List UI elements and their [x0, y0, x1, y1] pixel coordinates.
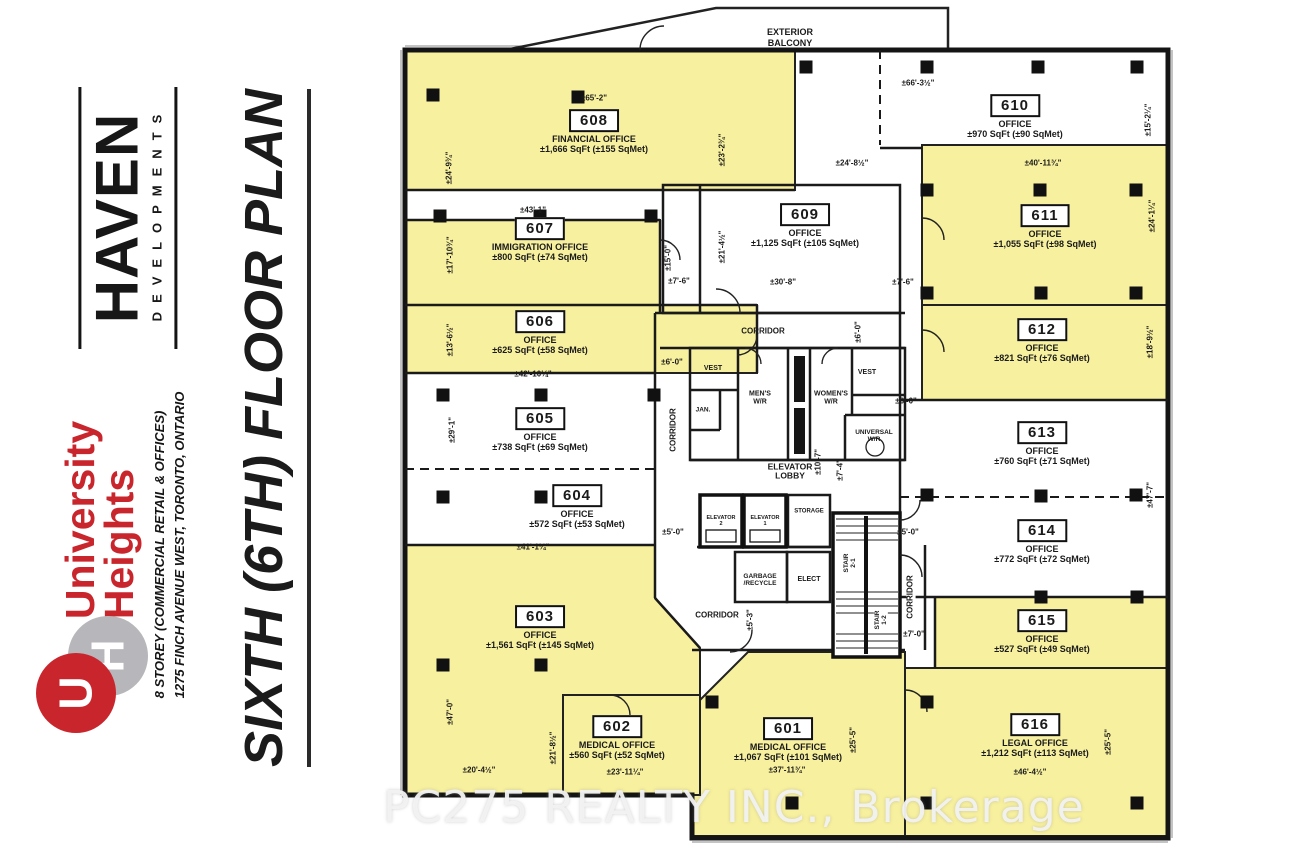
core-label: UNIVERSAL W/R — [855, 429, 893, 443]
room-number: 607 — [515, 217, 565, 240]
core-label: STAIR 2-1 — [843, 553, 857, 572]
room-label-609: 609OFFICE±1,125 SqFt (±105 SqMet) — [751, 203, 859, 249]
core-label: ELEVATOR LOBBY — [768, 463, 813, 482]
room-type: OFFICE — [994, 343, 1089, 353]
room-area: ±1,561 SqFt (±145 SqMet) — [486, 641, 594, 651]
dimension-label: ±21'-8½" — [549, 732, 558, 765]
room-label-608: 608FINANCIAL OFFICE±1,666 SqFt (±155 SqM… — [540, 109, 648, 155]
room-number: 604 — [552, 484, 602, 507]
room-label-603: 603OFFICE±1,561 SqFt (±145 SqMet) — [486, 605, 594, 651]
dimension-label: ±5'-3" — [746, 609, 755, 631]
room-number: 614 — [1017, 519, 1067, 542]
dimension-label: ±43'-1" — [520, 206, 546, 215]
core-label: MEN'S W/R — [749, 390, 771, 405]
dimension-label: ±30'-8" — [770, 278, 796, 287]
dimension-label: ±5'-0" — [897, 528, 919, 537]
dimension-label: ±5'-0" — [662, 528, 684, 537]
room-label-611: 611OFFICE±1,055 SqFt (±98 SqMet) — [994, 204, 1097, 250]
room-type: OFFICE — [967, 119, 1062, 129]
room-area: ±970 SqFt (±90 SqMet) — [967, 130, 1062, 140]
room-type: OFFICE — [492, 432, 587, 442]
dimension-label: ±17'-10¾" — [446, 236, 455, 273]
core-label: CORRIDOR — [695, 612, 739, 621]
room-type: OFFICE — [994, 544, 1089, 554]
room-type: LEGAL OFFICE — [981, 738, 1088, 748]
floor-plan-page: HAVEN DEVELOPMENTS University Heights 8 … — [0, 0, 1300, 867]
room-type: OFFICE — [529, 509, 624, 519]
room-label-604: 604OFFICE±572 SqFt (±53 SqMet) — [529, 484, 624, 530]
room-type: OFFICE — [492, 335, 587, 345]
room-number: 606 — [515, 310, 565, 333]
exterior-balcony-label: EXTERIOR BALCONY — [767, 27, 813, 49]
dimension-label: ±40'-11¾" — [1025, 159, 1062, 168]
room-area: ±738 SqFt (±69 SqMet) — [492, 443, 587, 453]
room-area: ±1,212 SqFt (±113 SqMet) — [981, 749, 1088, 759]
dimension-label: ±7'-6" — [668, 277, 690, 286]
dimension-label: ±25'-5" — [1104, 729, 1113, 755]
core-label: CORRIDOR — [907, 575, 916, 619]
room-label-607: 607IMMIGRATION OFFICE±800 SqFt (±74 SqMe… — [492, 217, 588, 263]
core-label: STAIR 1-2 — [874, 610, 888, 629]
room-area: ±800 SqFt (±74 SqMet) — [492, 253, 588, 263]
room-number: 602 — [592, 715, 642, 738]
room-type: MEDICAL OFFICE — [569, 740, 664, 750]
room-number: 615 — [1017, 609, 1067, 632]
room-label-601: 601MEDICAL OFFICE±1,067 SqFt (±101 SqMet… — [734, 717, 842, 763]
room-area: ±560 SqFt (±52 SqMet) — [569, 751, 664, 761]
dimension-label: ±10'-7" — [814, 449, 823, 475]
room-label-602: 602MEDICAL OFFICE±560 SqFt (±52 SqMet) — [569, 715, 664, 761]
dimension-label: ±66'-3½" — [902, 79, 935, 88]
room-type: MEDICAL OFFICE — [734, 742, 842, 752]
core-label: GARBAGE /RECYCLE — [743, 573, 776, 587]
room-area: ±772 SqFt (±72 SqMet) — [994, 555, 1089, 565]
room-area: ±1,125 SqFt (±105 SqMet) — [751, 239, 859, 249]
room-type: OFFICE — [486, 630, 594, 640]
room-area: ±821 SqFt (±76 SqMet) — [994, 354, 1089, 364]
room-type: IMMIGRATION OFFICE — [492, 242, 588, 252]
room-area: ±1,055 SqFt (±98 SqMet) — [994, 240, 1097, 250]
dimension-label: ±6'-0" — [895, 397, 917, 406]
room-label-616: 616LEGAL OFFICE±1,212 SqFt (±113 SqMet) — [981, 713, 1088, 759]
dimension-label: ±42'-10¼" — [514, 370, 551, 379]
room-type: FINANCIAL OFFICE — [540, 134, 648, 144]
core-label: CORRIDOR — [741, 328, 785, 337]
dimension-label: ±6'-0" — [661, 358, 683, 367]
dimension-label: ±18'-9½" — [1146, 326, 1155, 359]
room-area: ±1,067 SqFt (±101 SqMet) — [734, 753, 842, 763]
brokerage-watermark: PC275 REALTY INC., Brokerage — [383, 782, 1085, 833]
room-area: ±527 SqFt (±49 SqMet) — [994, 645, 1089, 655]
dimension-label: ±24'-8½" — [836, 159, 869, 168]
room-area: ±572 SqFt (±53 SqMet) — [529, 520, 624, 530]
dimension-label: ±15'-0" — [664, 245, 673, 271]
room-label-612: 612OFFICE±821 SqFt (±76 SqMet) — [994, 318, 1089, 364]
room-area: ±760 SqFt (±71 SqMet) — [994, 457, 1089, 467]
dimension-label: ±25'-5" — [849, 727, 858, 753]
room-type: OFFICE — [994, 229, 1097, 239]
core-label: VEST — [858, 369, 876, 377]
room-number: 616 — [1010, 713, 1060, 736]
room-label-605: 605OFFICE±738 SqFt (±69 SqMet) — [492, 407, 587, 453]
room-number: 609 — [780, 203, 830, 226]
core-label: ELEVATOR 1 — [750, 515, 779, 527]
dimension-label: ±24'-1¼" — [1148, 200, 1157, 233]
room-number: 613 — [1017, 421, 1067, 444]
dimension-label: ±37'-11¾" — [769, 766, 806, 775]
dimension-label: ±13'-6½" — [446, 324, 455, 357]
room-label-615: 615OFFICE±527 SqFt (±49 SqMet) — [994, 609, 1089, 655]
dimension-label: ±15'-2¼" — [1144, 104, 1153, 137]
room-label-614: 614OFFICE±772 SqFt (±72 SqMet) — [994, 519, 1089, 565]
dimension-label: ±7'-6" — [892, 278, 914, 287]
dimension-label: ±6'-0" — [854, 321, 863, 343]
core-label: VEST — [704, 365, 722, 373]
core-label: WOMEN'S W/R — [814, 390, 848, 405]
room-number: 601 — [763, 717, 813, 740]
dimension-label: ±29'-1" — [448, 417, 457, 443]
room-number: 603 — [515, 605, 565, 628]
core-label: ELEVATOR 2 — [706, 515, 735, 527]
dimension-label: ±47'-0" — [446, 699, 455, 725]
dimension-label: ±23'-11¼" — [607, 768, 644, 777]
room-number: 605 — [515, 407, 565, 430]
core-label: JAN. — [696, 406, 711, 413]
dimension-label: ±23'-2¾" — [718, 134, 727, 167]
dimension-label: ±47'-7" — [1146, 482, 1155, 508]
core-label: ELECT — [798, 576, 821, 584]
plan-labels-layer: EXTERIOR BALCONY 601MEDICAL OFFICE±1,067… — [0, 0, 1300, 867]
room-label-610: 610OFFICE±970 SqFt (±90 SqMet) — [967, 94, 1062, 140]
dimension-label: ±65'-2" — [581, 94, 607, 103]
dimension-label: ±7'-4" — [836, 459, 845, 481]
room-number: 608 — [569, 109, 619, 132]
dimension-label: ±21'-4½" — [718, 231, 727, 264]
dimension-label: ±24'-9¾" — [445, 152, 454, 185]
room-type: OFFICE — [994, 446, 1089, 456]
dimension-label: ±20'-4½" — [463, 766, 496, 775]
dimension-label: ±7'-0" — [903, 630, 925, 639]
room-number: 610 — [990, 94, 1040, 117]
dimension-label: ±46'-4½" — [1014, 768, 1047, 777]
room-number: 611 — [1020, 204, 1069, 227]
room-area: ±625 SqFt (±58 SqMet) — [492, 346, 587, 356]
dimension-label: ±41'-1¼" — [517, 543, 550, 552]
core-label: CORRIDOR — [670, 408, 679, 452]
room-label-613: 613OFFICE±760 SqFt (±71 SqMet) — [994, 421, 1089, 467]
room-type: OFFICE — [751, 228, 859, 238]
core-label: STORAGE — [794, 509, 824, 516]
room-type: OFFICE — [994, 634, 1089, 644]
room-number: 612 — [1017, 318, 1067, 341]
room-label-606: 606OFFICE±625 SqFt (±58 SqMet) — [492, 310, 587, 356]
room-area: ±1,666 SqFt (±155 SqMet) — [540, 145, 648, 155]
